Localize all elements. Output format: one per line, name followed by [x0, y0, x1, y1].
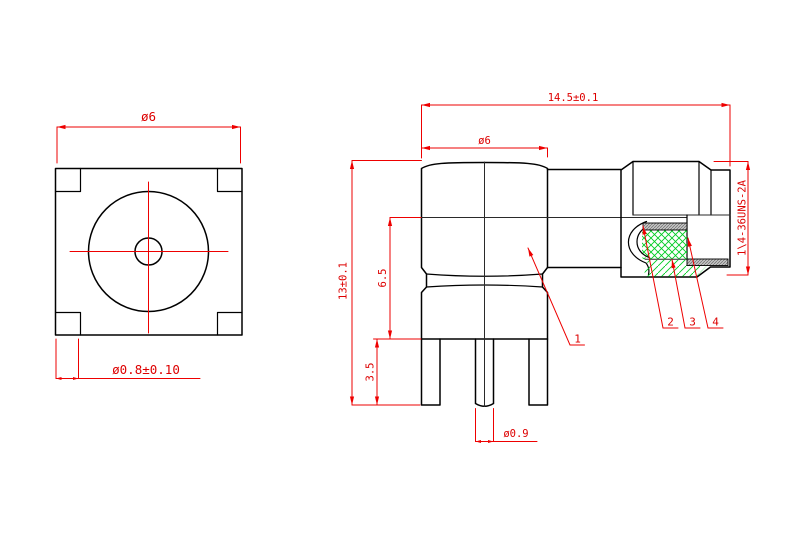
leg-dia-label: ø0.8±0.10: [112, 362, 180, 377]
part-label-4: 4: [712, 316, 719, 329]
pin-dia-label: ø0.9: [503, 428, 528, 440]
thread-spec-label: 1\4-36UNS-2A: [737, 179, 749, 256]
flange-dia-label: ø6: [141, 109, 156, 124]
leg-length-label: 3.5: [365, 363, 377, 382]
part-label-1: 1: [574, 333, 581, 346]
connector-drawing: ø6 ø0.8±0.10: [0, 0, 800, 536]
part-label-3: 3: [689, 316, 696, 329]
body-height-label: 6.5: [377, 269, 389, 288]
overall-height-label: 13±0.1: [338, 262, 350, 300]
overall-length-label: 14.5±0.1: [548, 92, 599, 104]
body-dia-label: ø6: [478, 135, 491, 147]
drawing-canvas: ø6 ø0.8±0.10: [0, 0, 800, 536]
contact-strip-upper: [643, 223, 687, 230]
part-label-2: 2: [667, 316, 674, 329]
